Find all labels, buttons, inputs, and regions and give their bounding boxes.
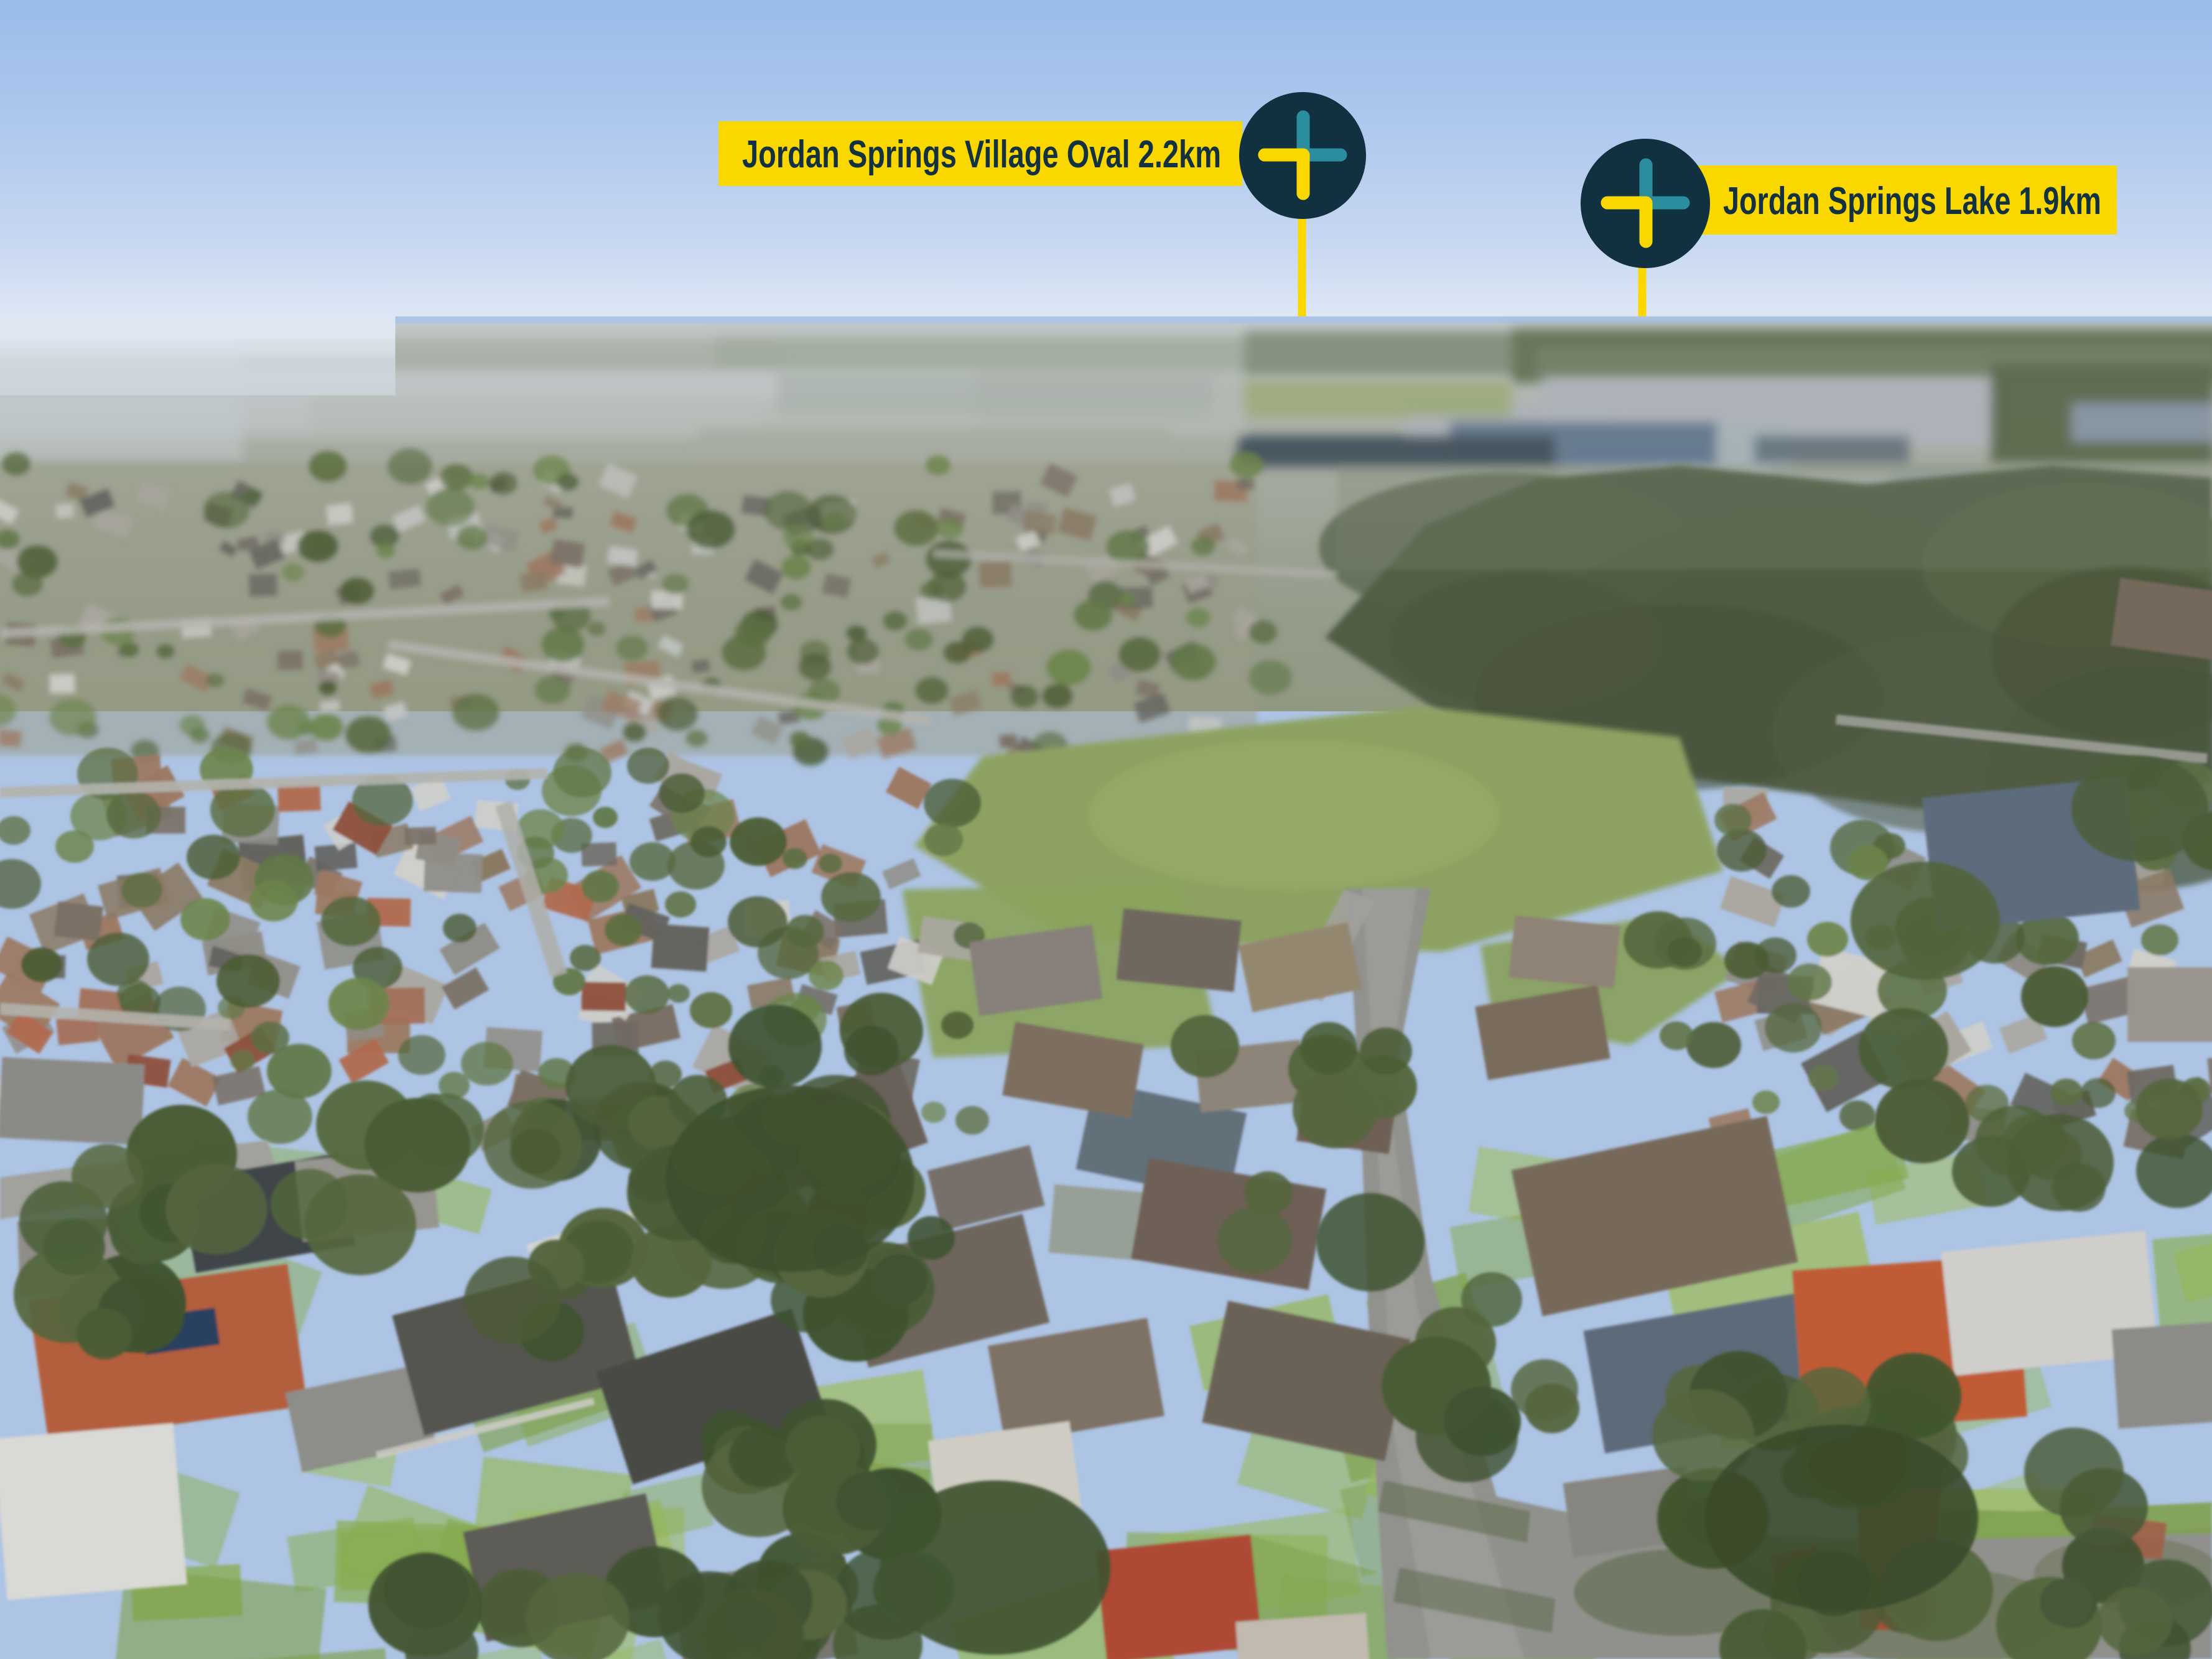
svg-text:33 Bottlebrush Dr: 33 Bottlebrush Dr bbox=[1207, 975, 1461, 1018]
svg-text:Jordan Springs Shopping Centre: Jordan Springs Shopping Centre 1.7km bbox=[1591, 727, 2098, 769]
svg-text:Jordan Springs Public School 1: Jordan Springs Public School 1.8km bbox=[773, 659, 1278, 702]
svg-text:|: | bbox=[1832, 1542, 1843, 1591]
svg-text:Jordan Springs Village Oval 2.: Jordan Springs Village Oval 2.2km bbox=[742, 133, 1221, 176]
svg-text:Simmons: Simmons bbox=[1639, 1542, 1815, 1591]
svg-text:Laing: Laing bbox=[1499, 1542, 1596, 1591]
svg-text:Jordan Springs Lake 1.9km: Jordan Springs Lake 1.9km bbox=[1723, 180, 2101, 223]
svg-text:Riverstone: Riverstone bbox=[1867, 1542, 2182, 1591]
